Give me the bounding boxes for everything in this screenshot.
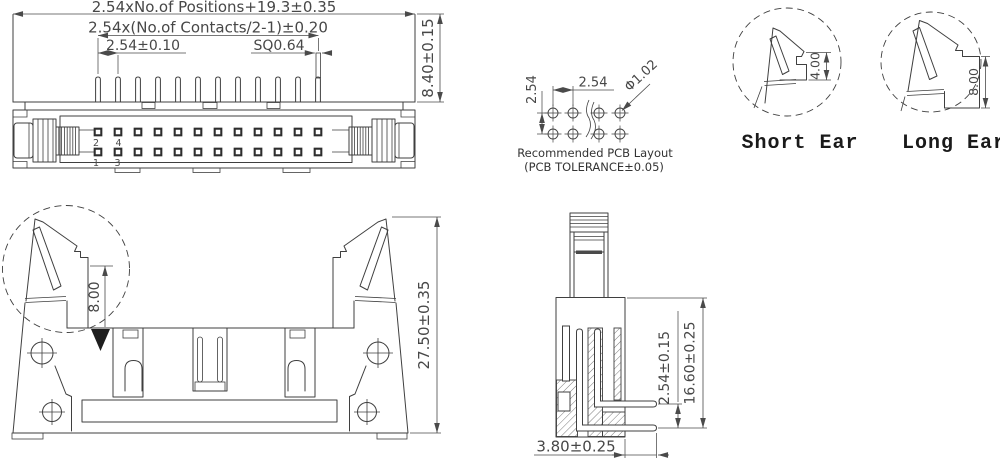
card-slot xyxy=(82,400,337,422)
dim-side-row-pitch: 2.54±0.15 xyxy=(657,311,682,428)
dim-overall-width: 2.54xNo.of Positions+19.3±0.35 xyxy=(13,0,415,16)
pin-number-4: 4 xyxy=(115,138,121,149)
side-view: 2.54±0.15 16.60±0.25 3.80±0.25 xyxy=(534,213,707,458)
pcb-caption-line2: (PCB TOLERANCE±0.05) xyxy=(524,160,664,174)
elevation-pins xyxy=(96,77,321,102)
measured-pin xyxy=(316,53,321,78)
center-key xyxy=(193,328,227,391)
side-lever xyxy=(570,213,608,298)
pin-number-2: 2 xyxy=(93,138,99,149)
detail-circle-short xyxy=(733,8,841,116)
pcb-caption-line1: Recommended PCB Layout xyxy=(517,146,673,160)
dim-overall-width-label: 2.54xNo.of Positions+19.3±0.35 xyxy=(92,0,337,16)
dim-front-overall-height: 27.50±0.35 xyxy=(392,217,441,433)
dim-side-pin-protrusion-label: 3.80±0.25 xyxy=(536,438,615,456)
drawing-sheet: 2.54xNo.of Positions+19.3±0.35 2.54x(No.… xyxy=(0,0,1000,458)
dim-pin-pitch-label: 2.54±0.10 xyxy=(106,38,180,54)
hatch-right-block xyxy=(603,412,626,437)
dim-pcb-hole-dia: Φ1.02 xyxy=(622,57,661,110)
base-bumps xyxy=(142,103,280,109)
pin-number-1: 1 xyxy=(93,158,99,169)
long-ear-detail: 8.00 Long Ear xyxy=(881,12,1000,155)
top-view-plan: 2 4 1 3 xyxy=(13,110,415,173)
left-ejector-latch xyxy=(14,119,96,162)
dim-pcb-hole-dia-label: Φ1.02 xyxy=(622,57,661,95)
dim-contacts-span-label: 2.54x(No.of Contacts/2-1)±0.20 xyxy=(88,19,328,37)
cavity-wall-a xyxy=(563,326,570,381)
big-arrow-down xyxy=(91,329,110,351)
dim-front-overall-height-label: 27.50±0.35 xyxy=(415,281,433,370)
long-ear-label: Long Ear xyxy=(902,132,1000,155)
short-ear-label: Short Ear xyxy=(741,132,858,155)
pin-number-3: 3 xyxy=(114,158,120,169)
dim-side-pin-protrusion: 3.80±0.25 xyxy=(534,433,669,458)
dim-body-height-label: 8.40±0.15 xyxy=(419,18,437,97)
bottom-pegs xyxy=(115,168,310,173)
dim-pcb-col-pitch-label: 2.54 xyxy=(579,76,608,91)
section-notch xyxy=(558,392,570,411)
contact-grid xyxy=(95,129,322,156)
short-ear-detail: 4.00 Short Ear xyxy=(733,8,859,155)
dim-long-ear-label: 8.00 xyxy=(966,68,981,96)
hatch-right-wall xyxy=(614,328,621,400)
dim-short-ear: 4.00 xyxy=(806,52,831,80)
break-marks xyxy=(586,100,595,139)
dim-pin-pitch: 2.54±0.10 xyxy=(98,38,186,74)
dim-pin-square: SQ0.64 xyxy=(251,38,331,54)
dim-short-ear-label: 4.00 xyxy=(808,52,823,80)
dim-long-ear: 8.00 xyxy=(966,57,990,109)
dim-pcb-row-pitch: 2.54 xyxy=(525,75,548,134)
front-left-ear xyxy=(25,219,88,328)
pcb-layout: 2.54 2.54 Φ1.02 Recommended PCB Layout (… xyxy=(517,57,673,174)
dim-pin-square-label: SQ0.64 xyxy=(253,38,304,54)
connector-technical-drawing: 2.54xNo.of Positions+19.3±0.35 2.54x(No.… xyxy=(0,0,1000,458)
right-ejector-latch xyxy=(332,119,414,162)
dim-side-row-pitch-label: 2.54±0.15 xyxy=(657,331,673,405)
dim-body-height: 8.40±0.15 xyxy=(417,14,444,102)
detail-circle-long xyxy=(881,12,981,112)
dim-front-ear-height-label: 8.00 xyxy=(87,281,103,312)
dim-side-overall-height-label: 16.60±0.25 xyxy=(683,322,699,405)
dim-pcb-col-pitch: 2.54 xyxy=(553,76,614,107)
dim-pcb-row-pitch-label: 2.54 xyxy=(525,75,540,104)
front-view: 8.00 27.50±0.35 xyxy=(3,206,442,440)
detail-circle-front xyxy=(3,206,130,333)
dim-front-ear-height: 8.00 xyxy=(87,266,113,351)
front-right-ear xyxy=(333,219,396,328)
latch-posts xyxy=(113,328,315,397)
